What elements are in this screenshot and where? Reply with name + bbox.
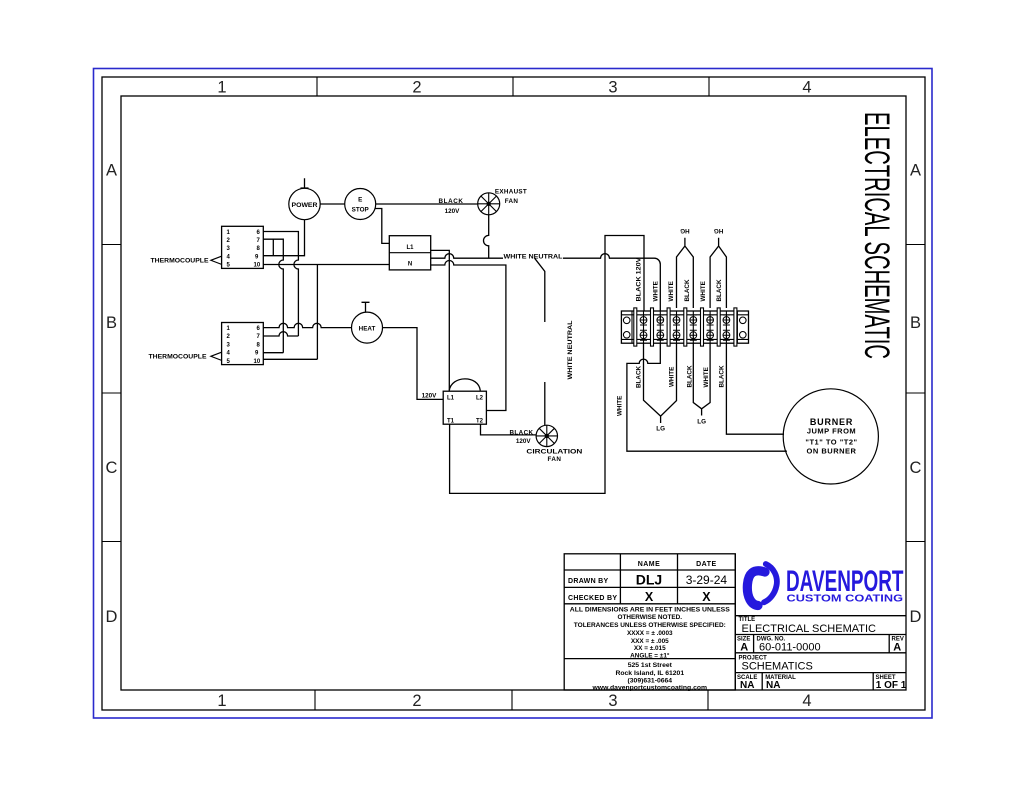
svg-text:THERMOCOUPLE: THERMOCOUPLE bbox=[151, 258, 209, 265]
svg-text:10: 10 bbox=[254, 359, 261, 365]
svg-text:BLACK: BLACK bbox=[684, 279, 691, 301]
svg-text:3: 3 bbox=[608, 692, 617, 710]
svg-text:XX = ±.015: XX = ±.015 bbox=[634, 645, 666, 652]
svg-text:A: A bbox=[893, 641, 901, 653]
svg-text:FAN: FAN bbox=[548, 456, 562, 463]
svg-text:Rock Island, IL 61201: Rock Island, IL 61201 bbox=[615, 670, 684, 677]
svg-text:"T1" TO "T2": "T1" TO "T2" bbox=[805, 438, 857, 447]
svg-text:A: A bbox=[910, 162, 921, 180]
svg-text:ANGLE = ±1°: ANGLE = ±1° bbox=[630, 652, 670, 660]
svg-text:2: 2 bbox=[412, 692, 421, 710]
svg-text:BLACK: BLACK bbox=[718, 365, 725, 387]
svg-text:NAME: NAME bbox=[638, 561, 661, 568]
svg-text:BLACK 120V: BLACK 120V bbox=[635, 257, 642, 302]
svg-text:WHITE NEUTRAL: WHITE NEUTRAL bbox=[567, 320, 574, 379]
svg-text:120V: 120V bbox=[516, 438, 532, 445]
svg-text:WHITE NEUTRAL: WHITE NEUTRAL bbox=[504, 254, 563, 261]
svg-text:WHITE: WHITE bbox=[700, 281, 707, 301]
svg-text:BLACK: BLACK bbox=[438, 198, 463, 205]
svg-text:B: B bbox=[106, 314, 117, 332]
svg-text:B: B bbox=[910, 314, 921, 332]
svg-text:FAN: FAN bbox=[505, 198, 519, 205]
svg-text:L1: L1 bbox=[447, 395, 455, 401]
svg-text:TOLERANCES UNLESS OTHERWISE SP: TOLERANCES UNLESS OTHERWISE SPECIFIED: bbox=[574, 622, 726, 629]
svg-text:4: 4 bbox=[802, 692, 811, 710]
svg-text:DLJ: DLJ bbox=[636, 572, 662, 588]
svg-text:WHITE: WHITE bbox=[653, 281, 660, 301]
svg-text:BLACK: BLACK bbox=[686, 365, 693, 387]
svg-text:EXHAUST: EXHAUST bbox=[495, 189, 527, 196]
svg-text:X: X bbox=[645, 590, 654, 604]
svg-text:WHITE: WHITE bbox=[668, 281, 675, 301]
svg-text:120V: 120V bbox=[445, 208, 461, 215]
svg-text:ELECTRICAL SCHEMATIC: ELECTRICAL SCHEMATIC bbox=[742, 623, 877, 635]
svg-text:D: D bbox=[910, 608, 922, 626]
svg-text:LG: LG bbox=[656, 426, 665, 433]
svg-text:JUMP FROM: JUMP FROM bbox=[807, 427, 856, 436]
svg-text:ON BURNER: ON BURNER bbox=[807, 446, 857, 455]
svg-text:HEAT: HEAT bbox=[359, 325, 376, 332]
svg-text:T1: T1 bbox=[447, 418, 455, 424]
svg-text:120V: 120V bbox=[422, 392, 438, 399]
svg-text:POWER: POWER bbox=[292, 202, 318, 209]
svg-text:E: E bbox=[358, 197, 362, 204]
svg-text:C: C bbox=[910, 459, 922, 477]
svg-text:BURNER: BURNER bbox=[810, 417, 853, 427]
svg-text:L1: L1 bbox=[406, 245, 414, 251]
svg-text:CIRCULATION: CIRCULATION bbox=[526, 449, 583, 456]
svg-text:1: 1 bbox=[217, 79, 226, 97]
svg-text:XXX = ± .005: XXX = ± .005 bbox=[631, 638, 669, 645]
svg-text:C: C bbox=[106, 459, 118, 477]
svg-text:BLACK: BLACK bbox=[716, 279, 723, 301]
svg-text:CHECKED BY: CHECKED BY bbox=[568, 595, 617, 602]
svg-text:X: X bbox=[702, 590, 711, 604]
svg-text:T2: T2 bbox=[476, 418, 484, 424]
svg-text:XXXX = ± .0003: XXXX = ± .0003 bbox=[627, 630, 673, 637]
svg-text:2: 2 bbox=[412, 79, 421, 97]
svg-text:DATE: DATE bbox=[696, 561, 717, 568]
svg-text:ALL DIMENSIONS ARE IN FEET INC: ALL DIMENSIONS ARE IN FEET INCHES UNLESS bbox=[570, 606, 731, 613]
svg-text:www.davenportcustomcoating.com: www.davenportcustomcoating.com bbox=[592, 684, 708, 691]
svg-text:10: 10 bbox=[254, 263, 261, 269]
svg-text:L2: L2 bbox=[476, 395, 484, 401]
svg-text:HG: HG bbox=[714, 227, 724, 234]
svg-text:A: A bbox=[106, 162, 117, 180]
svg-text:BLACK: BLACK bbox=[635, 366, 642, 388]
svg-text:CUSTOM COATING: CUSTOM COATING bbox=[787, 593, 904, 604]
svg-text:DRAWN BY: DRAWN BY bbox=[568, 578, 609, 585]
svg-text:OTHERWISE NOTED.: OTHERWISE NOTED. bbox=[618, 614, 683, 621]
svg-text:WHITE: WHITE bbox=[668, 367, 675, 387]
svg-text:ELECTRICAL SCHEMATIC: ELECTRICAL SCHEMATIC bbox=[857, 112, 896, 359]
svg-text:60-011-0000: 60-011-0000 bbox=[759, 641, 821, 653]
svg-text:WHITE: WHITE bbox=[617, 396, 624, 416]
svg-text:N: N bbox=[408, 262, 412, 268]
svg-text:NA: NA bbox=[766, 680, 780, 691]
svg-text:WHITE: WHITE bbox=[703, 367, 710, 387]
svg-text:SCHEMATICS: SCHEMATICS bbox=[742, 661, 813, 673]
svg-text:4: 4 bbox=[802, 79, 811, 97]
svg-text:1: 1 bbox=[217, 692, 226, 710]
svg-text:NA: NA bbox=[740, 680, 754, 691]
svg-text:A: A bbox=[740, 641, 748, 653]
svg-text:LG: LG bbox=[697, 419, 706, 426]
svg-text:HG: HG bbox=[680, 227, 690, 234]
svg-text:3: 3 bbox=[608, 79, 617, 97]
svg-text:STOP: STOP bbox=[352, 207, 369, 214]
svg-text:THERMOCOUPLE: THERMOCOUPLE bbox=[149, 354, 207, 361]
svg-text:525 1st Street: 525 1st Street bbox=[628, 662, 673, 669]
svg-text:BLACK: BLACK bbox=[509, 430, 533, 437]
svg-text:3-29-24: 3-29-24 bbox=[686, 573, 728, 587]
svg-text:D: D bbox=[106, 608, 118, 626]
svg-text:1 OF 1: 1 OF 1 bbox=[876, 680, 907, 691]
